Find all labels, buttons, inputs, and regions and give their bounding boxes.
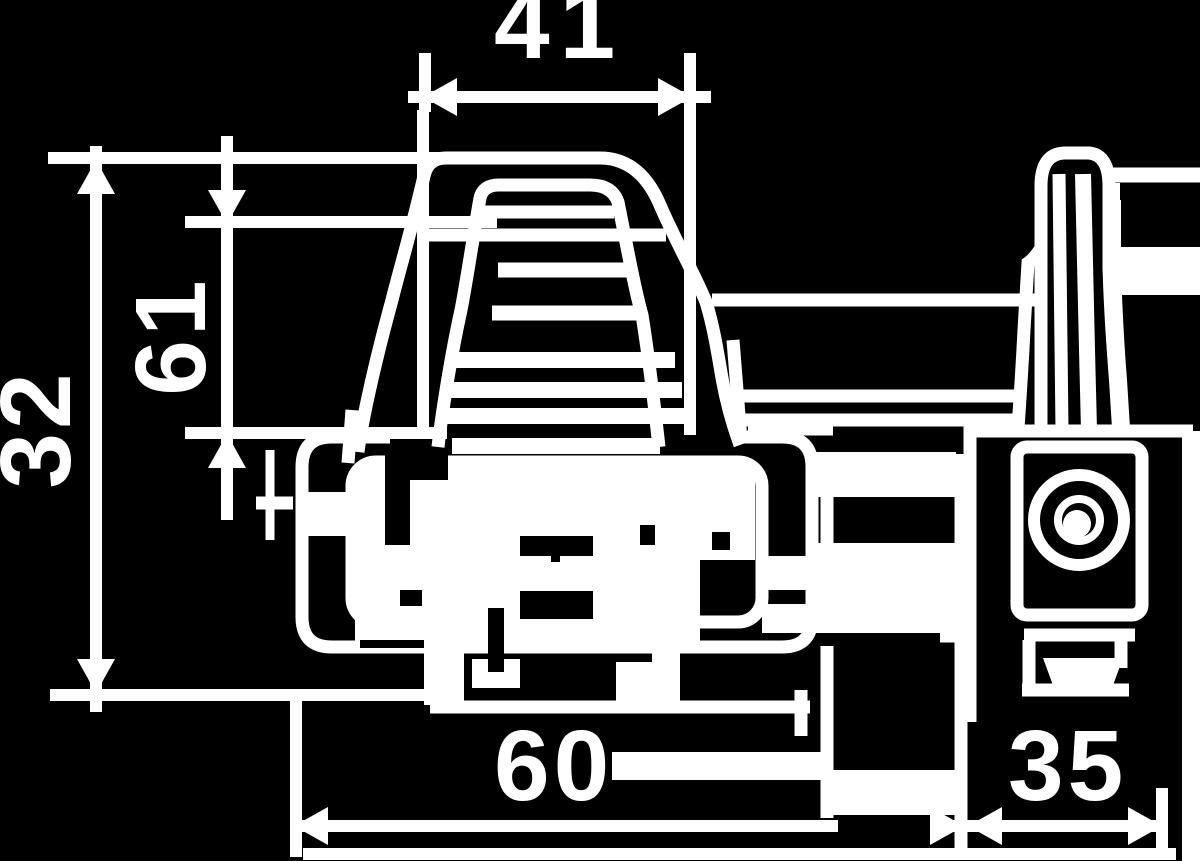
svg-text:35: 35 <box>1008 710 1127 822</box>
svg-text:41: 41 <box>494 0 625 80</box>
svg-text:32: 32 <box>0 369 92 488</box>
svg-text:60: 60 <box>494 710 613 822</box>
svg-text:61: 61 <box>115 276 227 395</box>
